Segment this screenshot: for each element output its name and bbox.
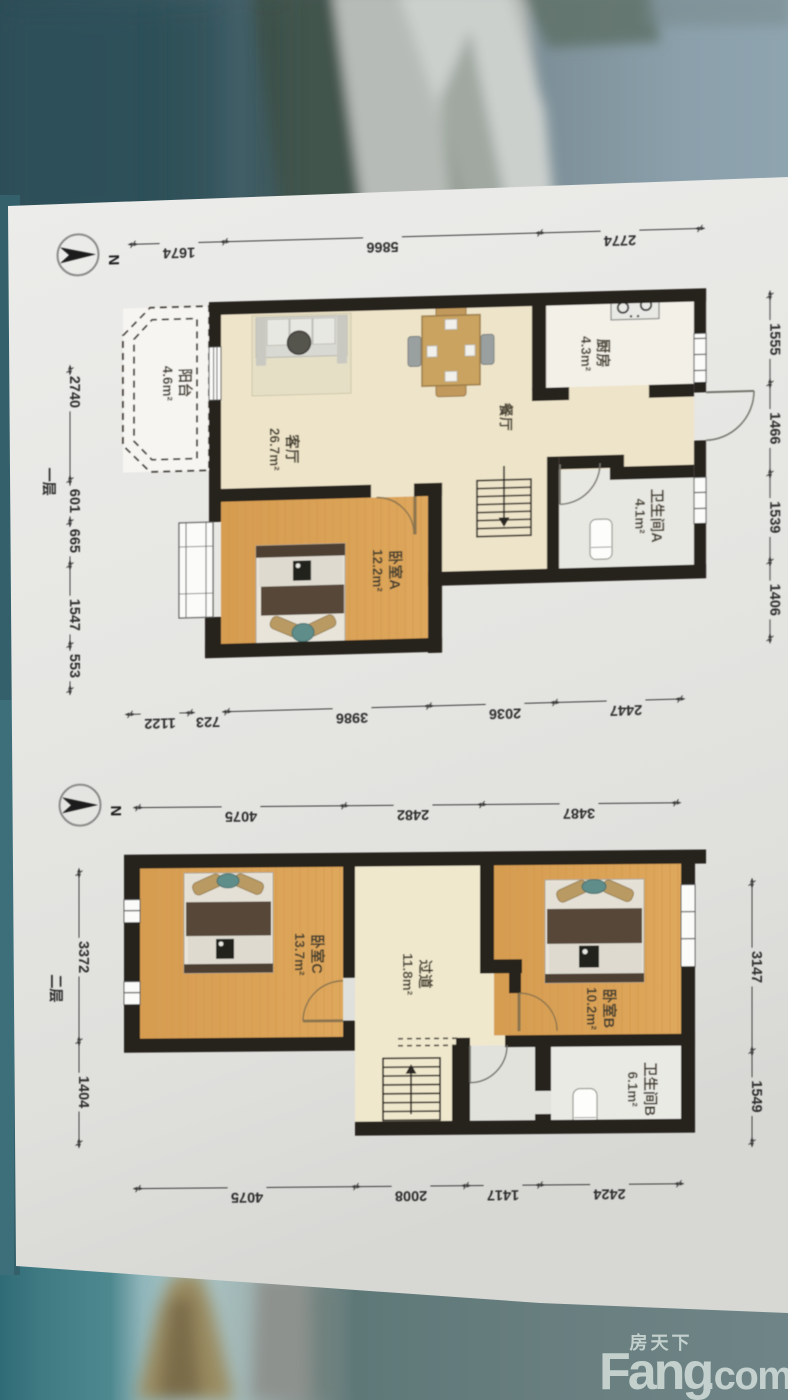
svg-text:4.6m²: 4.6m² <box>160 366 175 402</box>
svg-text:5866: 5866 <box>366 238 398 255</box>
svg-text:1122: 1122 <box>144 714 175 731</box>
svg-text:13.7m²: 13.7m² <box>292 933 307 976</box>
svg-text:2482: 2482 <box>397 806 429 822</box>
svg-text:二层: 二层 <box>48 974 64 1002</box>
svg-text:Fang: Fang <box>599 1343 711 1400</box>
svg-text:3372: 3372 <box>75 941 91 973</box>
svg-text:1406: 1406 <box>766 584 782 617</box>
svg-text:11.8m²: 11.8m² <box>400 953 415 996</box>
svg-text:N: N <box>107 805 124 816</box>
svg-text:卧室C: 卧室C <box>308 934 326 974</box>
svg-text:1466: 1466 <box>766 412 782 445</box>
svg-text:3487: 3487 <box>563 805 595 821</box>
svg-text:卧室A: 卧室A <box>386 550 404 590</box>
svg-text:1549: 1549 <box>748 1080 764 1112</box>
svg-text:厨房: 厨房 <box>594 338 612 367</box>
svg-text:12.2m²: 12.2m² <box>370 549 385 593</box>
svg-text:2740: 2740 <box>66 376 82 409</box>
svg-text:4075: 4075 <box>231 1189 263 1205</box>
svg-text:2447: 2447 <box>610 701 642 718</box>
svg-text:4.3m²: 4.3m² <box>578 336 593 372</box>
svg-text:2008: 2008 <box>395 1187 427 1203</box>
svg-text:N: N <box>105 254 122 265</box>
svg-text:过道: 过道 <box>416 959 434 989</box>
svg-text:卫生间B: 卫生间B <box>641 1062 659 1116</box>
svg-text:553: 553 <box>66 654 82 679</box>
svg-text:1547: 1547 <box>66 599 82 632</box>
svg-text:一层: 一层 <box>41 467 57 495</box>
svg-text:1674: 1674 <box>163 244 195 261</box>
svg-text:3147: 3147 <box>748 951 764 983</box>
svg-text:卧室B: 卧室B <box>600 989 618 1029</box>
svg-text:1404: 1404 <box>75 1076 91 1108</box>
svg-text:723: 723 <box>196 713 220 730</box>
svg-text:10.2m²: 10.2m² <box>584 987 599 1030</box>
svg-text:2036: 2036 <box>489 704 521 721</box>
svg-text:6.1m²: 6.1m² <box>625 1072 640 1108</box>
svg-text:客厅: 客厅 <box>283 433 301 464</box>
svg-text:2774: 2774 <box>604 231 636 248</box>
svg-text:1555: 1555 <box>766 323 782 356</box>
svg-text:餐厅: 餐厅 <box>498 402 514 431</box>
svg-text:2424: 2424 <box>593 1185 625 1201</box>
svg-text:4.1m²: 4.1m² <box>632 498 647 534</box>
svg-text:1539: 1539 <box>766 501 782 534</box>
svg-text:卫生间A: 卫生间A <box>648 488 666 543</box>
svg-text:阳台: 阳台 <box>176 368 194 397</box>
svg-text:665: 665 <box>66 529 82 554</box>
svg-text:1417: 1417 <box>487 1186 519 1202</box>
svg-text:4075: 4075 <box>225 808 257 824</box>
svg-text:26.7m²: 26.7m² <box>267 428 282 472</box>
svg-text:601: 601 <box>66 489 82 514</box>
svg-text:3986: 3986 <box>336 709 368 726</box>
svg-text:.com: .com <box>704 1354 788 1398</box>
